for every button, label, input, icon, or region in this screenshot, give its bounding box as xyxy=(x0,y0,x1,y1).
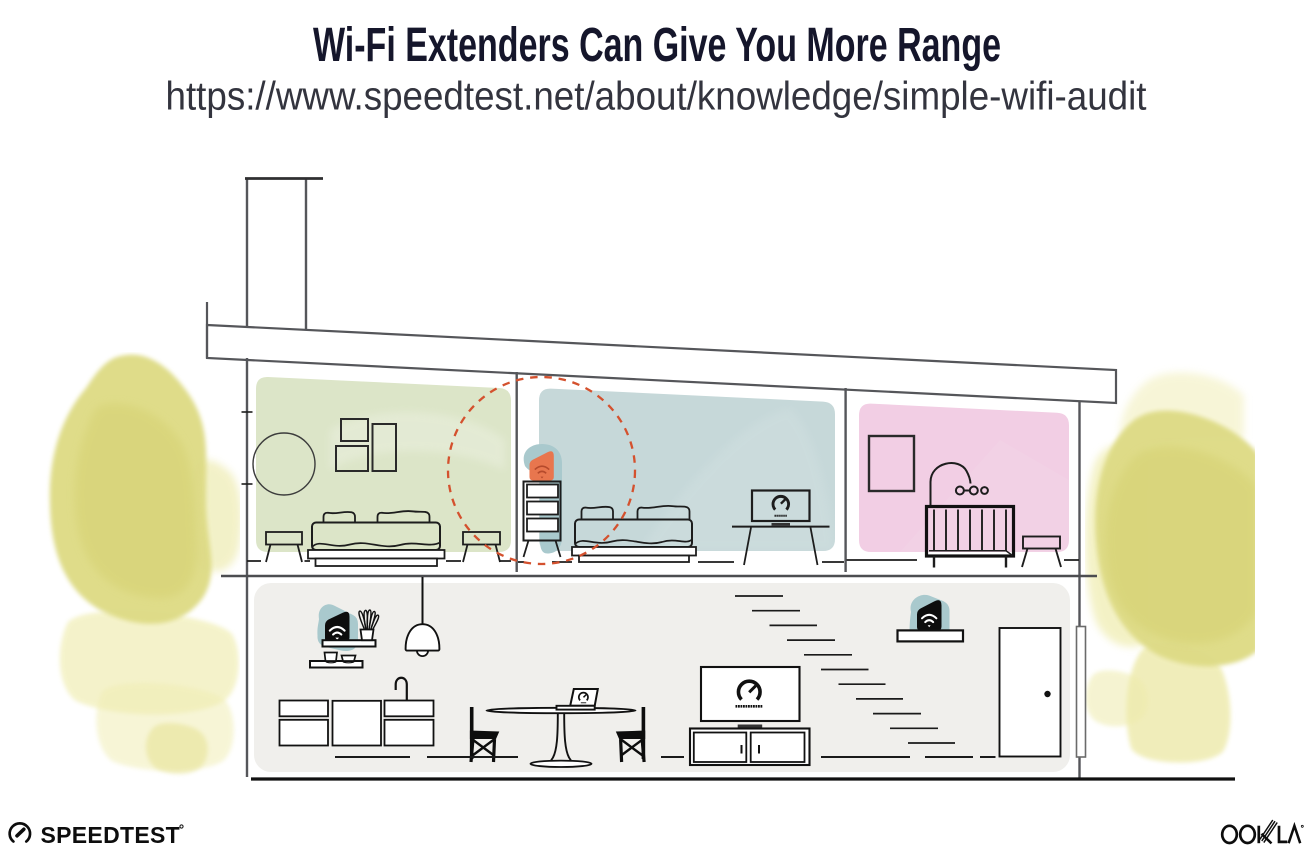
svg-text:SPEEDTEST: SPEEDTEST xyxy=(41,822,180,848)
svg-text:https://www.speedtest.net/abou: https://www.speedtest.net/about/knowledg… xyxy=(166,75,1147,119)
svg-text:Wi-Fi Extenders Can Give You M: Wi-Fi Extenders Can Give You More Range xyxy=(313,19,1001,72)
